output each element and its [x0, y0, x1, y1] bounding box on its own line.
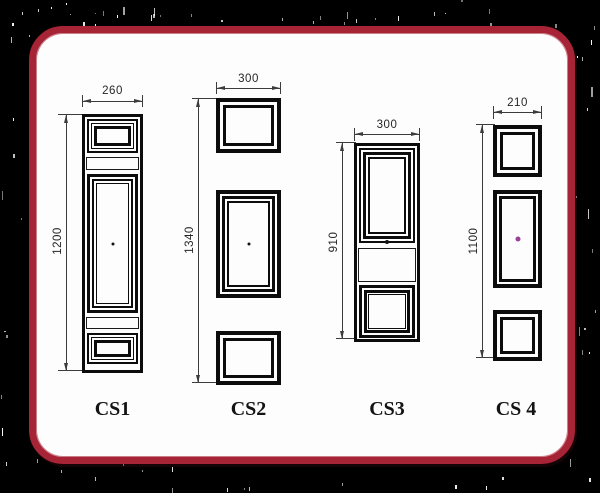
extension-line — [58, 114, 84, 115]
cs1-middle-panel — [87, 174, 138, 313]
dim-arrow-up — [64, 115, 68, 123]
cs1-height-dim-line — [66, 115, 67, 371]
dim-arrow-up — [340, 143, 344, 151]
cs3-label: CS3 — [352, 398, 422, 421]
frame — [216, 190, 281, 298]
dim-arrow-left — [494, 110, 502, 114]
cs3-height-dim-text: 910 — [328, 232, 340, 253]
center-point-dot — [111, 242, 114, 245]
frame — [500, 132, 535, 170]
center-point-dot — [385, 240, 389, 244]
extension-line — [541, 106, 542, 119]
cs3-bottom-panel — [359, 285, 415, 338]
dim-arrow-right — [272, 86, 280, 90]
cs1-height-dim-text: 1200 — [52, 227, 64, 255]
cs1-lower-rail — [86, 317, 139, 329]
cs4-width-dim-label: 210 — [493, 97, 542, 109]
cs2-height-dim-text: 1340 — [184, 226, 196, 254]
extension-line — [336, 338, 356, 339]
frame — [500, 317, 535, 354]
frame — [499, 196, 536, 282]
cs1-bottom-panel — [87, 333, 138, 364]
cs1-width-dim-label: 260 — [82, 85, 143, 97]
frame — [493, 125, 542, 177]
cs2-middle-panel — [216, 190, 281, 298]
frame — [94, 340, 131, 357]
center-point-dot — [247, 243, 250, 246]
frame — [96, 183, 129, 304]
extension-line — [142, 95, 143, 107]
frame — [216, 331, 281, 385]
frame — [368, 294, 406, 329]
extension-line — [58, 370, 84, 371]
cs4-label: CS 4 — [487, 398, 545, 421]
frame — [223, 105, 274, 146]
dim-arrow-up — [480, 125, 484, 133]
cs3-spacer-panel — [358, 248, 416, 282]
cs2-bottom-panel — [216, 331, 281, 385]
frame — [223, 338, 274, 378]
cs4-height-dim-text: 1100 — [468, 228, 480, 255]
frame — [363, 152, 411, 239]
frame — [227, 201, 270, 287]
drawings-layer: 260 1200 — [0, 0, 600, 493]
cs4-bottom-panel — [493, 310, 542, 361]
frame — [92, 179, 133, 308]
cs2-height-dim-line — [198, 99, 199, 383]
extension-line — [419, 128, 420, 141]
dim-arrow-right — [533, 110, 541, 114]
frame — [359, 148, 415, 243]
frame — [87, 174, 138, 313]
extension-line — [192, 382, 218, 383]
dim-arrow-left — [355, 132, 363, 136]
frame — [216, 98, 281, 153]
cs2-width-dim-label: 300 — [216, 73, 281, 85]
frame — [87, 119, 138, 153]
cs3-height-dim-line — [342, 143, 343, 339]
frame — [87, 333, 138, 364]
extension-line — [280, 82, 281, 94]
cs4-middle-panel — [493, 190, 542, 288]
cs3-top-panel — [359, 148, 415, 243]
frame — [364, 290, 410, 333]
frame — [368, 157, 406, 234]
dim-arrow-up — [196, 99, 200, 107]
frame — [493, 310, 542, 361]
cs1-upper-rail — [86, 157, 139, 170]
frame — [94, 126, 131, 146]
frame — [91, 123, 134, 149]
cs1-top-panel — [87, 119, 138, 153]
cs4-height-dim-line — [482, 125, 483, 358]
dim-arrow-right — [411, 132, 419, 136]
frame — [91, 337, 134, 360]
cs2-top-panel — [216, 98, 281, 153]
cs4-top-panel — [493, 125, 542, 177]
dim-arrow-right — [134, 99, 142, 103]
center-point-dot-magenta — [515, 237, 520, 242]
frame — [493, 190, 542, 288]
cs1-label: CS1 — [80, 398, 145, 421]
frame — [222, 196, 275, 292]
extension-line — [336, 142, 356, 143]
frame — [359, 285, 415, 338]
drawing-sheet: 260 1200 — [0, 0, 600, 493]
dim-arrow-left — [83, 99, 91, 103]
cs3-width-dim-label: 300 — [354, 119, 420, 131]
extension-line — [192, 98, 218, 99]
cs2-label: CS2 — [214, 398, 283, 421]
dim-arrow-left — [217, 86, 225, 90]
